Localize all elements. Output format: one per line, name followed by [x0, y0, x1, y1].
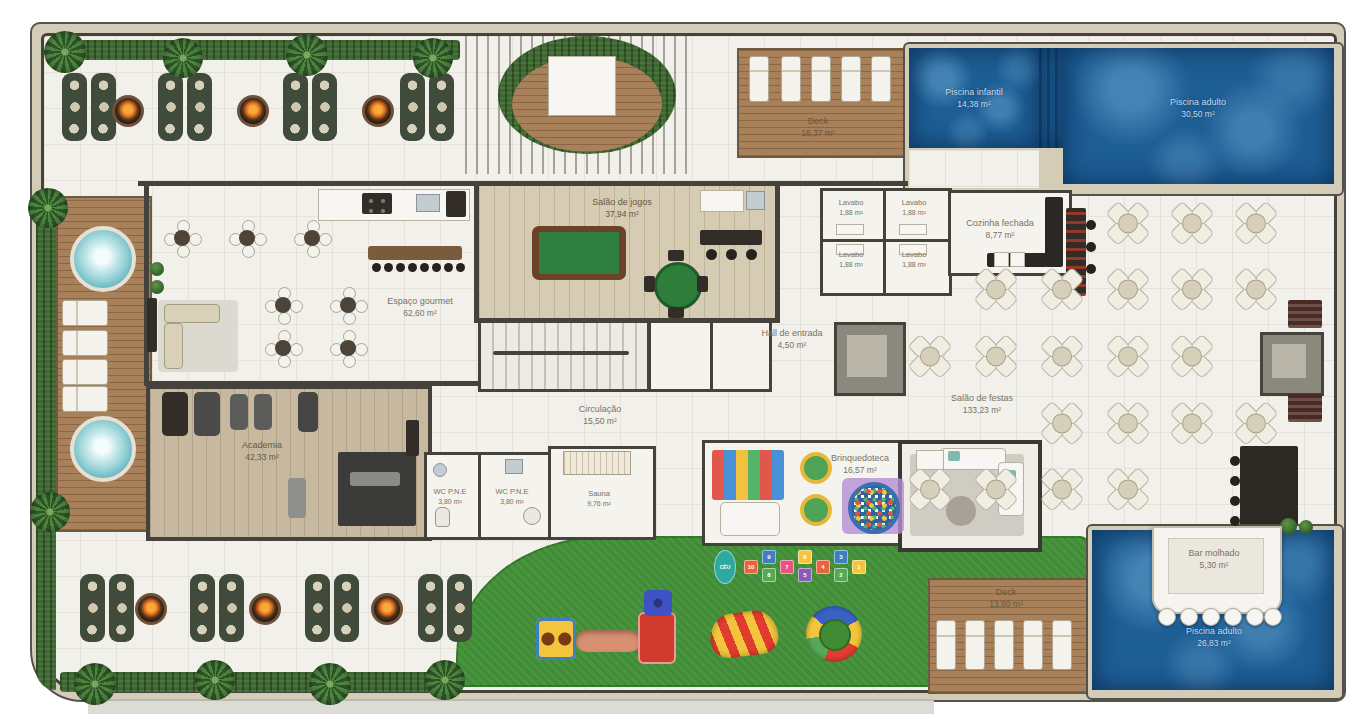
chair — [290, 343, 303, 356]
palm-tree — [195, 660, 235, 700]
dining-table — [164, 220, 200, 256]
card-table — [654, 262, 702, 310]
toilet — [435, 507, 450, 527]
exercise-bike — [254, 394, 272, 430]
sofa-cluster — [334, 574, 359, 642]
bar-stool — [444, 263, 453, 272]
hot-tub — [70, 226, 136, 292]
dining-table — [229, 220, 265, 256]
label-deck-top: Deck18,37 m² — [801, 116, 835, 139]
fire-pit — [237, 95, 269, 127]
crawl-block — [536, 618, 576, 660]
pool-side-walk — [909, 150, 1039, 188]
play-mat — [712, 450, 784, 500]
dining-table — [265, 330, 301, 366]
kids-table — [800, 452, 832, 484]
chair — [290, 300, 303, 313]
kids-table — [800, 494, 832, 526]
dining-table — [294, 220, 330, 256]
play-cube-top — [644, 590, 672, 616]
stool — [1010, 252, 1025, 267]
palm-tree — [163, 38, 203, 78]
wall — [144, 381, 484, 386]
bar-stool — [1086, 242, 1096, 252]
wall — [775, 186, 780, 322]
cozinha-counter — [1045, 197, 1063, 267]
label-espaco-gourmet: Espaço gourmet62,60 m² — [387, 296, 453, 319]
stove — [362, 193, 392, 214]
sun-lounger — [936, 620, 956, 670]
chair — [343, 355, 356, 368]
palm-tree — [74, 663, 116, 705]
table-top — [239, 230, 255, 246]
sauna-bench — [563, 451, 631, 475]
bar-stool — [420, 263, 429, 272]
hopscotch-tile: 5 — [798, 568, 812, 582]
hopscotch-tile: 1 — [852, 560, 866, 574]
dining-table — [330, 330, 366, 366]
sidewalk — [88, 699, 934, 714]
weight-mat — [338, 452, 416, 526]
label-academia: Academia42,33 m² — [242, 440, 282, 463]
palm-tree — [30, 492, 70, 532]
sideboard — [1288, 300, 1322, 328]
fire-pit — [112, 95, 144, 127]
chair — [355, 343, 368, 356]
hot-tub — [70, 416, 136, 482]
planter-bench — [548, 56, 616, 116]
crawl-tube — [576, 630, 640, 652]
sun-lounger — [811, 56, 831, 102]
elevator-cab — [1272, 344, 1306, 378]
wall — [474, 186, 479, 322]
label-piscina-infantil: Piscina infantil14,38 m² — [945, 87, 1003, 110]
sink — [433, 463, 447, 477]
stair-railing — [493, 351, 629, 355]
treadmill — [162, 392, 188, 436]
chair — [254, 233, 267, 246]
bar-stool — [372, 263, 381, 272]
sun-lounger — [965, 620, 985, 670]
label-salao-festas: Salão de festas133,23 m² — [951, 393, 1013, 416]
label-wc-pne: WC P.N.E3,80 m² — [433, 487, 466, 506]
entry-elevator — [834, 322, 906, 396]
lavabo-room — [820, 188, 889, 245]
table-top — [340, 340, 356, 356]
sofa-cluster — [283, 73, 308, 141]
tv-panel — [147, 298, 157, 352]
bar-stool — [408, 263, 417, 272]
label-lavabo: Lavabo1,88 m² — [839, 250, 864, 269]
sofa-cluster — [418, 574, 443, 642]
carousel-center — [819, 619, 851, 651]
ball-pit — [848, 482, 900, 534]
bar-stool — [384, 263, 393, 272]
sun-lounger — [1052, 620, 1072, 670]
fire-pit — [362, 95, 394, 127]
fridge — [446, 191, 466, 217]
fire-pit — [371, 593, 403, 625]
dumbbell-rack — [406, 420, 419, 456]
label-sauna: Sauna9,76 m² — [587, 489, 611, 508]
sink — [505, 459, 523, 474]
card-table-chair — [668, 307, 684, 318]
pool-bar-stool — [1158, 608, 1176, 626]
sofa-cluster — [187, 73, 212, 141]
table-top — [275, 340, 291, 356]
label-circulacao: Circulação15,50 m² — [579, 404, 622, 427]
pool-bar-stool — [1180, 608, 1198, 626]
bar-stool — [396, 263, 405, 272]
pillow — [948, 451, 960, 461]
label-deck-bottom: Deck13,90 m² — [989, 587, 1023, 610]
bar-stool — [726, 249, 737, 260]
sun-lounger — [781, 56, 801, 102]
sideboard — [1288, 394, 1322, 422]
chair — [177, 245, 190, 258]
plant-pot — [150, 280, 164, 294]
label-wc-pne: WC P.N.E3,80 m² — [495, 487, 528, 506]
palm-tree — [425, 660, 465, 700]
sofa-cluster — [219, 574, 244, 642]
pool-bar-stool — [1246, 608, 1264, 626]
plant-pot — [150, 262, 164, 276]
wall — [138, 181, 908, 186]
table-top — [275, 297, 291, 313]
sun-lounger — [994, 620, 1014, 670]
sofa-cluster — [190, 574, 215, 642]
sofa-cluster — [305, 574, 330, 642]
staircase — [478, 320, 650, 392]
hopscotch-tile: 2 — [834, 568, 848, 582]
pool-lane-divider — [1039, 48, 1063, 148]
pool-bar-stool — [1224, 608, 1242, 626]
label-cozinha-fechada: Cozinha fechada8,77 m² — [966, 218, 1034, 241]
gourmet-bar-counter — [368, 246, 462, 260]
bar-stool — [1230, 476, 1240, 486]
bush — [1299, 520, 1313, 534]
bush — [1280, 518, 1297, 535]
elevator — [648, 320, 714, 392]
bench-press — [350, 472, 400, 486]
lavabo-counter — [836, 224, 864, 235]
label-lavabo: Lavabo1,88 m² — [902, 198, 927, 217]
table-top — [340, 297, 356, 313]
palm-tree — [44, 31, 86, 73]
sun-lounger — [62, 386, 108, 412]
game-room-counter — [700, 190, 744, 212]
card-table-chair — [697, 276, 708, 292]
sink — [416, 194, 440, 212]
chair — [343, 312, 356, 325]
label-lavabo: Lavabo1,88 m² — [902, 250, 927, 269]
shower — [523, 507, 541, 525]
hopscotch-tile: 3 — [834, 550, 848, 564]
label-hall-entrada: Hall de entrada4,50 m² — [761, 328, 822, 351]
sun-lounger — [62, 330, 108, 356]
chair — [189, 233, 202, 246]
palm-tree — [286, 34, 328, 76]
label-brinquedoteca: Brinquedoteca16,57 m² — [831, 453, 889, 476]
card-table-chair — [668, 250, 684, 261]
chair — [242, 245, 255, 258]
lavabo-counter — [899, 224, 927, 235]
pool-bar-stool — [1202, 608, 1220, 626]
label-piscina-adulto-bottom: Piscina adulto26,83 m² — [1186, 626, 1242, 649]
sun-lounger — [749, 56, 769, 102]
bar-stool — [1086, 264, 1096, 274]
sofa-cluster — [62, 73, 87, 141]
chair — [355, 300, 368, 313]
bar-stool — [1230, 456, 1240, 466]
game-room-bar — [700, 230, 762, 245]
hopscotch-tile: 4 — [816, 560, 830, 574]
billiard-table — [532, 226, 626, 280]
hedge-bottom — [60, 672, 460, 692]
play-cube — [638, 612, 676, 664]
table-top — [174, 230, 190, 246]
dining-table — [330, 287, 366, 323]
gourmet-sofa — [164, 304, 220, 323]
wall — [144, 186, 149, 386]
kids-sofa — [720, 502, 780, 536]
palm-tree — [413, 38, 453, 78]
hopscotch-tile: 7 — [780, 560, 794, 574]
sofa-cluster — [80, 574, 105, 642]
hopscotch-tile: 8 — [762, 568, 776, 582]
floor-plan: Piscina infantil14,38 m² Piscina adulto3… — [0, 0, 1366, 719]
elevator-cab — [847, 335, 887, 377]
bar-stool — [1230, 516, 1240, 526]
bar-stool — [1086, 220, 1096, 230]
bar-stool — [706, 249, 717, 260]
chair — [278, 355, 291, 368]
label-piscina-adulto-top: Piscina adulto30,50 m² — [1170, 97, 1226, 120]
bar-stool — [746, 249, 757, 260]
hedge-left — [36, 196, 56, 690]
chair — [307, 245, 320, 258]
sofa-cluster — [158, 73, 183, 141]
gym-bench — [288, 478, 306, 518]
pool-bar-stool — [1264, 608, 1282, 626]
sun-lounger — [62, 359, 108, 385]
sofa-cluster — [429, 73, 454, 141]
billiard-felt — [539, 232, 619, 274]
chair — [319, 233, 332, 246]
lavabo-room — [883, 188, 952, 245]
sofa-cluster — [447, 574, 472, 642]
service-elevator — [1260, 332, 1324, 396]
sun-lounger — [62, 300, 108, 326]
fire-pit — [135, 593, 167, 625]
bar-stool — [1230, 496, 1240, 506]
card-table-chair — [644, 276, 655, 292]
label-bar-molhado: Bar molhado5,30 m² — [1188, 548, 1239, 571]
sofa-cluster — [109, 574, 134, 642]
table-top — [304, 230, 320, 246]
hopscotch-tile: 6 — [798, 550, 812, 564]
sofa-cluster — [312, 73, 337, 141]
sink — [746, 191, 765, 210]
carousel — [806, 606, 862, 662]
sun-lounger — [1023, 620, 1043, 670]
chair — [278, 312, 291, 325]
hopscotch-tile: 9 — [762, 550, 776, 564]
palm-tree — [28, 188, 68, 228]
label-lavabo: Lavabo1,88 m² — [839, 198, 864, 217]
sofa-cluster — [400, 73, 425, 141]
hopscotch-tile: 10 — [744, 560, 758, 574]
sun-lounger — [841, 56, 861, 102]
hedge-top — [52, 40, 460, 60]
elliptical — [298, 392, 318, 432]
gourmet-sofa — [164, 323, 183, 369]
exercise-bike — [230, 394, 248, 430]
hopscotch-tile: CÉU — [714, 550, 736, 584]
palm-tree — [309, 663, 351, 705]
bar-stool — [432, 263, 441, 272]
treadmill — [194, 392, 220, 436]
bar-stool — [456, 263, 465, 272]
fire-pit — [249, 593, 281, 625]
sun-lounger — [871, 56, 891, 102]
label-salao-jogos: Salão de jogos37,94 m² — [592, 197, 652, 220]
dining-table — [265, 287, 301, 323]
